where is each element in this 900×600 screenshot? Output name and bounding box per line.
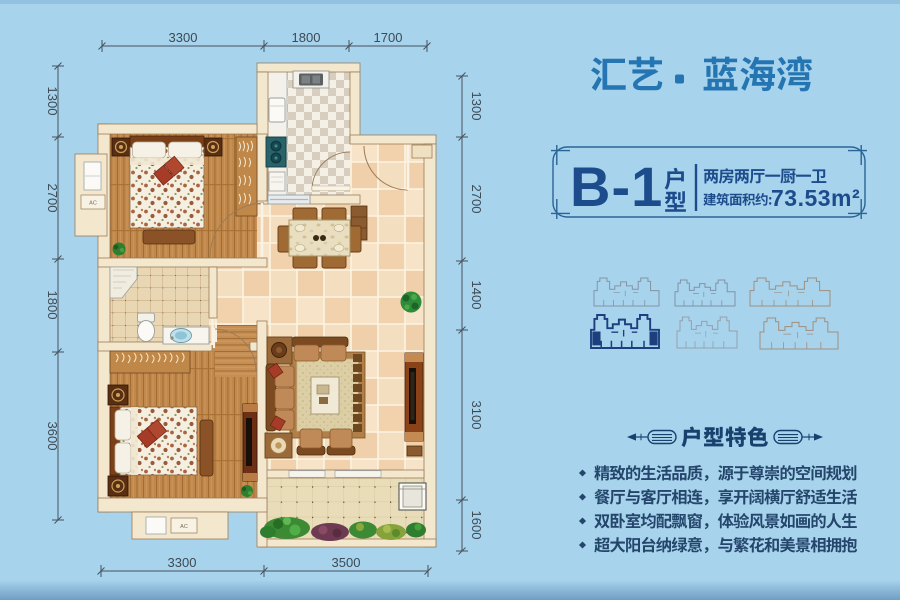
svg-text:2700: 2700 [45,184,60,213]
svg-text:3600: 3600 [45,422,60,451]
svg-text:3300: 3300 [168,555,197,570]
svg-text:1400: 1400 [469,281,484,310]
svg-text:1800: 1800 [292,30,321,45]
svg-text:3100: 3100 [469,401,484,430]
svg-text:3500: 3500 [332,555,361,570]
svg-text:B-1: B-1 [570,155,663,218]
svg-text:1800: 1800 [45,291,60,320]
svg-text:73.53m²: 73.53m² [771,185,860,211]
svg-text:AC: AC [180,524,188,530]
svg-text:AC: AC [89,201,97,207]
svg-text:2700: 2700 [469,185,484,214]
svg-text:1600: 1600 [469,511,484,540]
svg-text:3300: 3300 [169,30,198,45]
svg-text:1300: 1300 [45,87,60,116]
svg-text:1300: 1300 [469,92,484,121]
svg-text:1700: 1700 [374,30,403,45]
